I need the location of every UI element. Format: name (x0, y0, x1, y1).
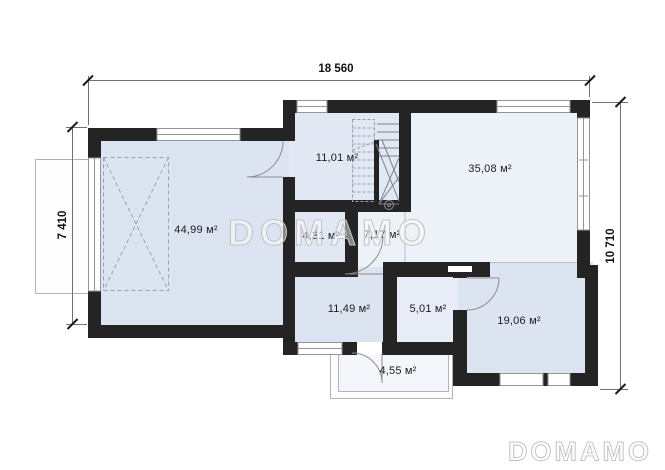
room-label-living: 35,08 м² (468, 163, 511, 175)
room-label-hall: 11,01 м² (316, 152, 359, 164)
room-label-bedroom: 19,06 м² (497, 315, 540, 327)
room-label-garage: 44,99 м² (174, 224, 217, 236)
floor-plan: 18 560 7 410 10 710 44,99 м² 11,01 м² 35… (0, 0, 665, 470)
dimension-label-top: 18 560 (318, 63, 353, 75)
dimension-label-right: 10 710 (605, 228, 617, 263)
room-label-pantry: 5,01 м² (409, 303, 446, 315)
dimension-label-left: 7 410 (57, 211, 69, 240)
room-label-room: 11,49 м² (328, 303, 371, 315)
room-label-porch: 4,55 м² (379, 365, 416, 377)
watermark-corner: DOMAMO (508, 437, 652, 468)
watermark-center: DOMAMO (228, 212, 432, 254)
